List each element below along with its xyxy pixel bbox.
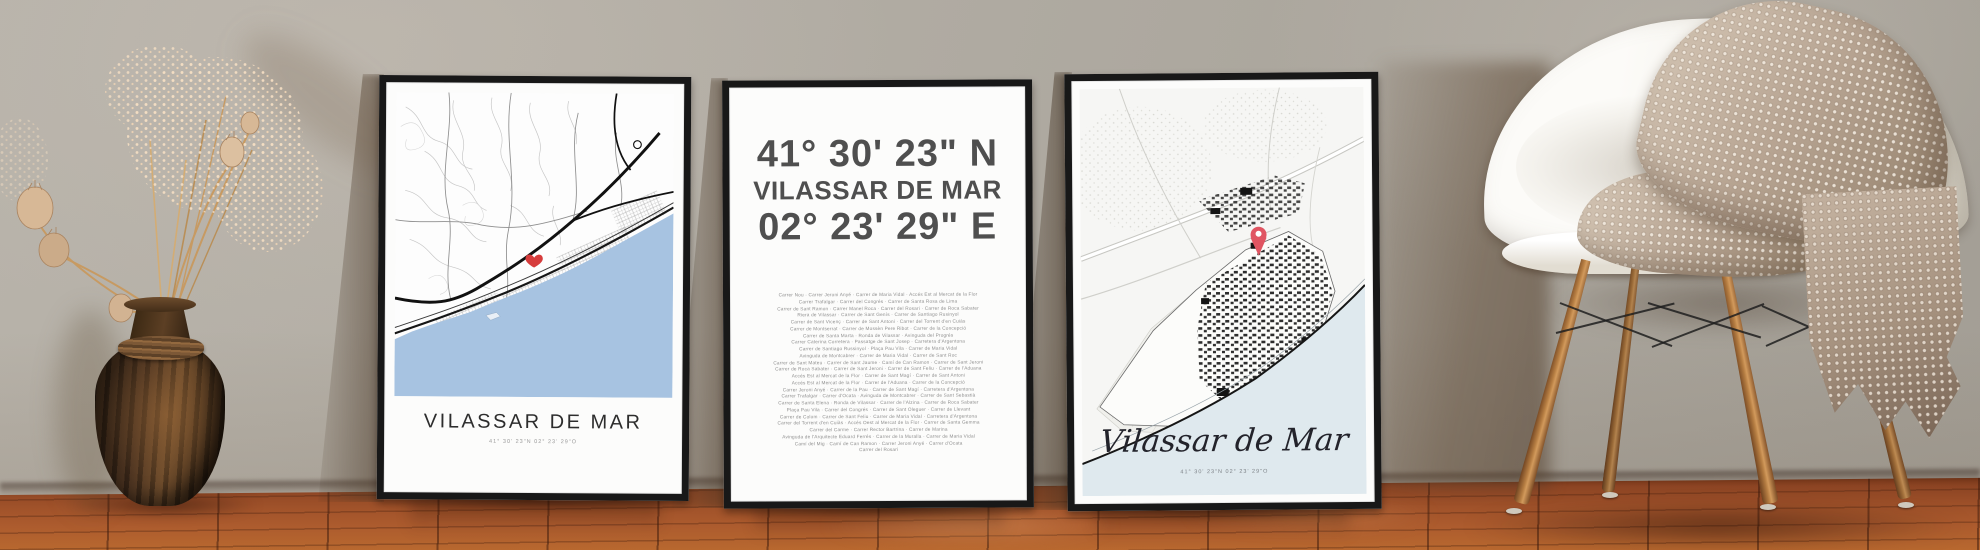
chair-foot (1506, 508, 1522, 514)
floor-reflection (1095, 510, 1350, 542)
chair-foot (1602, 492, 1618, 498)
chair-foot (1760, 504, 1776, 510)
poster-map-left: VILASSAR DE MAR 41° 30' 23"N 02° 23' 29"… (377, 75, 692, 501)
chair-foot (1898, 502, 1914, 508)
longitude-line: 02° 23' 29" E (730, 205, 1026, 248)
poster-title: VILASSAR DE MAR (384, 410, 682, 435)
city-name-line: VILASSAR DE MAR (729, 174, 1025, 206)
poster-typographic-middle: 41° 30' 23" N VILASSAR DE MAR 02° 23' 29… (722, 79, 1034, 508)
floor-reflection (410, 500, 660, 538)
poster-content: Vilassar de Mar 41° 30' 23"N 02° 23' 29"… (1071, 79, 1374, 504)
headline-block: 41° 30' 23" N VILASSAR DE MAR 02° 23' 29… (729, 132, 1025, 248)
latitude-line: 41° 30' 23" N (729, 132, 1025, 175)
city-map (394, 92, 674, 398)
room-scene: VILASSAR DE MAR 41° 30' 23"N 02° 23' 29"… (0, 0, 1980, 550)
poster-title-script: Vilassar de Mar (1072, 422, 1375, 460)
vase-twine (118, 336, 204, 360)
floor-reflection (755, 508, 1005, 542)
vase (95, 340, 225, 506)
poster-map-right: Vilassar de Mar 41° 30' 23"N 02° 23' 29"… (1064, 72, 1381, 511)
dried-flowers (0, 30, 330, 330)
poster-coordinates: 41° 30' 23"N 02° 23' 29"O (384, 438, 682, 446)
street-name-list: Carrer Nou · Carrer Jeroni Anyé · Carrer… (752, 291, 1005, 454)
vase-rim (124, 297, 196, 312)
chair-floor-shadow (1468, 505, 1968, 547)
